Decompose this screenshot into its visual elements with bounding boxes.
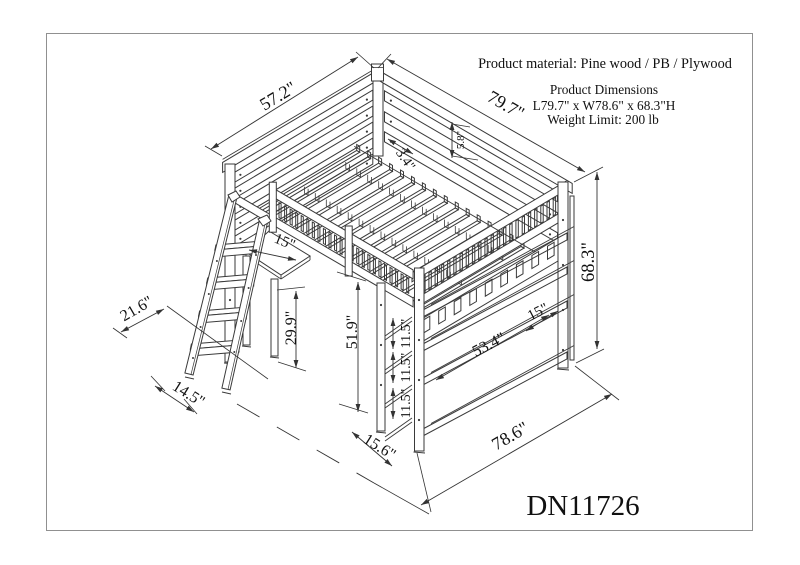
svg-text:DN11726: DN11726 [526, 490, 639, 522]
svg-text:51.9": 51.9" [344, 315, 361, 350]
svg-text:68.3": 68.3" [579, 242, 599, 282]
svg-text:29.9": 29.9" [283, 311, 300, 346]
svg-text:11.5": 11.5" [399, 319, 414, 349]
svg-text:Product Dimensions: Product Dimensions [550, 82, 658, 97]
svg-text:11.5": 11.5" [399, 389, 414, 419]
svg-text:Weight Limit: 200 lb: Weight Limit: 200 lb [547, 112, 659, 127]
svg-text:11.5": 11.5" [399, 353, 414, 383]
svg-text:L79.7" x W78.6" x 68.3"H: L79.7" x W78.6" x 68.3"H [533, 98, 676, 113]
svg-text:5.8": 5.8" [455, 131, 467, 149]
svg-text:Product material: Pine wood /: Product material: Pine wood / PB / Plywo… [478, 56, 732, 72]
